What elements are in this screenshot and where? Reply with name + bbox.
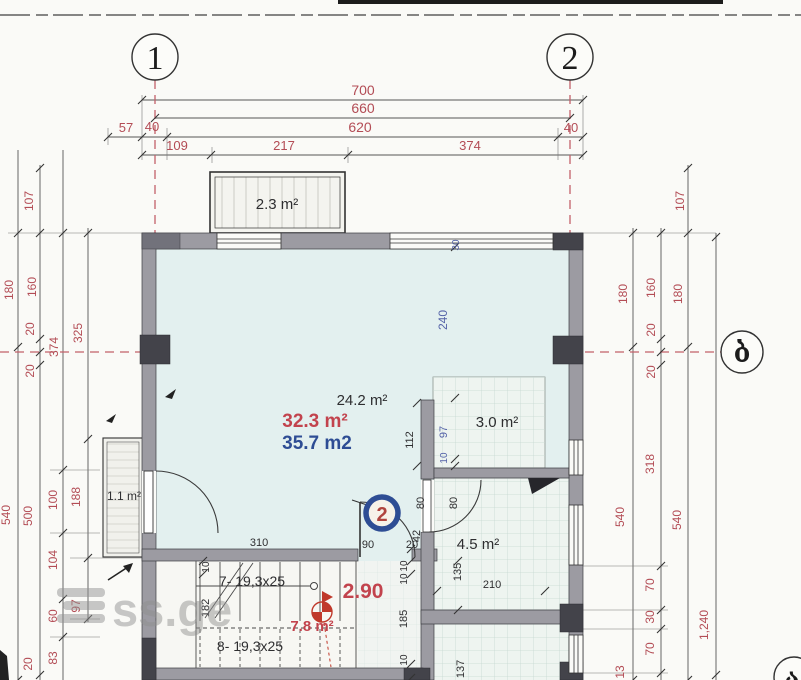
floorplan-drawing: 1 2 ბ ა 2 700660574062040109217374107180… [0,0,801,680]
watermark: ss.ge [57,583,232,636]
watermark-text: ss.ge [112,583,232,636]
room-label: 32.3 m² [282,411,347,432]
column-top-right [553,233,583,250]
dim-label: 540 [613,507,627,527]
dim-label: 70 [643,642,657,656]
wall-partition-lower [421,532,434,680]
wall-bath-bottom [421,610,569,624]
dim-label: 109 [166,138,188,153]
dim-label: 137 [455,660,467,678]
callout-number: 2 [376,504,387,526]
room-label: 7.8 m² [290,618,333,635]
dim-label: 20 [23,322,37,336]
dim-label: 374 [47,337,61,357]
dim-label: 217 [273,138,295,153]
dim-label: 104 [46,550,60,570]
dim-label: 80 [448,497,460,509]
dim-label: 83 [46,651,60,665]
window-top-2 [390,233,553,249]
wall-stair-top [142,549,358,561]
room-label: 8- 19,3x25 [217,638,283,654]
dim-label: 318 [643,454,657,474]
dim-label: 160 [25,277,39,297]
dim-label: 30 [451,239,462,251]
dim-label: 540 [670,510,684,530]
dim-label: 10 [399,573,410,585]
dim-label: 374 [459,138,481,153]
dim-label: 10 [439,452,450,464]
dim-label: 40 [564,120,578,135]
room-label: 3.0 m² [476,414,519,431]
dim-label: 500 [21,506,35,526]
dim-label: 57 [119,120,133,135]
window-right-1 [569,440,583,475]
dim-label: 107 [22,191,36,211]
room-label: 24.2 m² [337,392,388,409]
slope-arrow-icon [108,563,133,580]
watermark-logo-bar [63,601,105,610]
scan-edge-top [338,0,723,4]
dim-label: 620 [348,119,372,135]
dim-label: 325 [71,323,85,343]
dim-label: 540 [0,505,13,525]
column-bottom-mid [404,668,430,680]
marker-arrow-icon [106,414,116,423]
watermark-logo-bar [57,588,105,597]
room-label: 35.7 m2 [282,433,352,454]
dim-label: 160 [644,278,658,298]
wall-kitchen-bath [434,468,569,478]
dim-label: 112 [404,431,416,449]
room-label: 2.90 [343,580,384,603]
window-right-2 [569,505,583,565]
dim-label: 180 [671,284,685,304]
dim-label: 40 [145,119,159,134]
dim-label: 13 [613,665,627,679]
dim-label: 20 [644,323,658,337]
grid-bubble-1-label: 1 [147,40,164,77]
dim-label: 20 [644,365,658,379]
column-left-axis [140,335,170,364]
dim-label: 10 [399,560,410,572]
dim-label: 660 [351,100,375,116]
dim-label: 310 [250,537,268,549]
dim-label: 107 [673,191,687,211]
dim-label: 240 [436,310,450,330]
dim-label: 10 [399,654,410,666]
room-label: 4.5 m² [457,536,500,553]
dim-label: 42 [411,530,423,542]
dim-label: 70 [643,578,657,592]
window-right-3 [569,635,583,673]
wall-partition-upper [421,400,434,479]
dim-label: 135 [452,563,464,581]
grid-bubble-2-label: 2 [562,40,579,77]
watermark-logo-bar [57,614,105,623]
dim-label: 180 [616,284,630,304]
floorplan-scan: 1 2 ბ ა 2 700660574062040109217374107180… [0,0,801,680]
dim-label: 10 [201,561,212,573]
scan-corner-blob [0,650,9,680]
dim-label: 180 [2,280,16,300]
dim-label: 100 [46,490,60,510]
column-top-left [142,233,180,249]
dim-label: 20 [21,657,35,671]
wall-stair-bottom [156,668,423,680]
dim-label: 20 [23,364,37,378]
grid-bubble-b-label: ბ [734,338,751,368]
dim-label: 185 [398,610,410,628]
window-top-1 [217,233,281,249]
dim-label: 188 [69,487,83,507]
grid-bubble-corner-label: ა [785,666,799,680]
dim-label: 700 [351,82,375,98]
stair-newel-post [311,583,318,590]
dim-label: 210 [483,579,501,591]
column-right-axis [553,336,583,364]
column-right-lower [560,604,583,632]
dim-label: 90 [362,539,374,551]
column-left-bottom [142,638,156,680]
dim-label: 80 [415,497,427,509]
room-label: 1.1 m² [107,489,141,503]
dim-label: 30 [643,610,657,624]
dim-label: 1,240 [697,610,711,640]
landing-grid [358,561,421,668]
dim-label: 97 [438,426,450,438]
room-label: 2.3 m² [256,196,299,213]
